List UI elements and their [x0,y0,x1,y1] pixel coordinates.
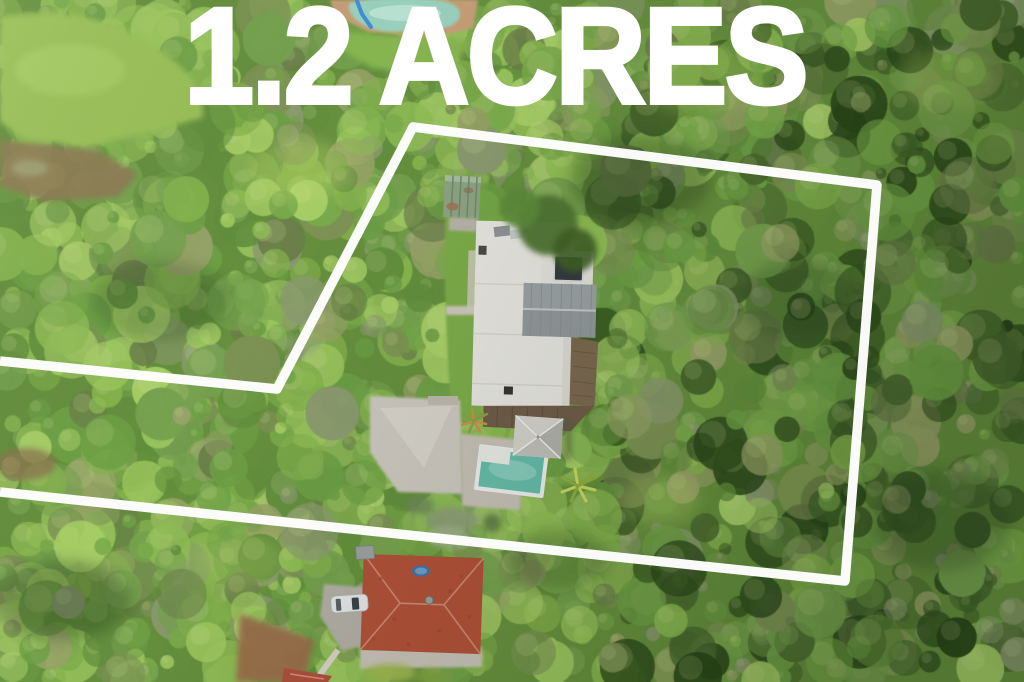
aerial-photo: 1.2 ACRES [0,0,1024,682]
acreage-headline: 1.2 ACRES [184,0,806,125]
